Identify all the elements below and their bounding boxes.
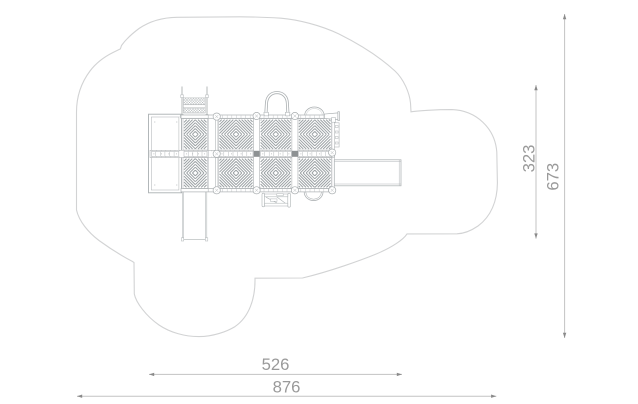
svg-text:526: 526 (262, 355, 290, 374)
svg-text:673: 673 (544, 163, 563, 191)
svg-text:876: 876 (273, 377, 301, 396)
svg-text:323: 323 (520, 145, 539, 173)
